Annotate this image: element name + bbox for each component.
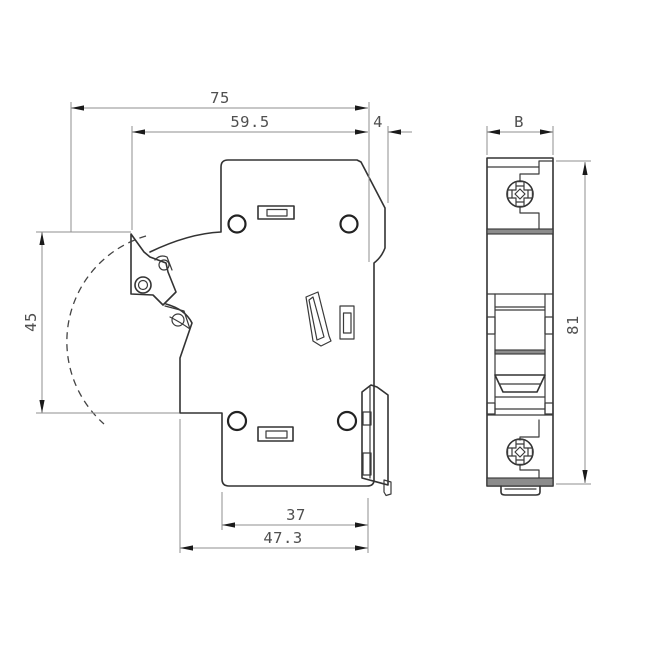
mounting-hole [229,216,246,233]
dimension-body-depth: 59.5 [132,113,368,230]
front-bottom-band [487,478,553,486]
arrowhead [388,129,401,134]
lever-pivot-hole-outer [135,277,151,293]
bottom-terminal-step [520,420,539,440]
lower-peg-roller [172,314,184,326]
top-terminal-step [520,207,539,229]
arrowhead [540,129,553,134]
dim-front-height-label: 45 [22,312,40,332]
arrowhead [39,400,44,413]
arrowhead [222,522,235,527]
vent-slot-outer [258,427,293,441]
din-clip-outline [362,385,388,485]
window-divider-band [495,350,545,354]
side-slot-outer [340,306,354,339]
lever-pivot-hole-inner [139,281,148,290]
arrowhead [487,129,500,134]
front-band [487,229,553,234]
arrowhead [355,522,368,527]
mounting-hole [341,216,358,233]
arrowhead [355,545,368,550]
dim-body-depth-label: 59.5 [230,113,269,131]
window-side-clip [545,403,553,414]
lever-outline [131,234,176,305]
bottom-terminal-step [520,465,539,478]
bottom-terminal-screw [507,439,533,465]
vent-slot-inner [267,210,287,217]
arrowhead [582,162,587,175]
dim-total-height-label: 81 [564,315,582,335]
side-view [67,160,391,496]
lever-swing-arc [67,236,146,424]
arrowhead [180,545,193,550]
dimension-total-depth: 75 [71,89,369,262]
front-view [487,158,553,495]
technical-drawing-canvas: 75 59.5 4 B [0,0,650,650]
top-terminal-screw [507,181,533,207]
arrowhead [355,129,368,134]
arrowhead [582,470,587,483]
front-din-foot [501,486,540,495]
dim-rail-hook-label: 4 [373,113,383,131]
dimension-module-width: B [487,113,553,155]
window-side-clip [545,317,553,334]
technical-drawing-page: 75 59.5 4 B [0,0,650,650]
upper-peg-tab [155,256,172,270]
arrowhead [132,129,145,134]
extension-line [71,102,369,262]
dim-module-width-label: B [514,113,524,131]
mounting-hole [338,412,356,430]
vent-slot-inner [266,431,287,438]
dim-total-depth-label: 75 [210,89,230,107]
vent-slot-outer [258,206,294,219]
window-double-line [495,307,545,310]
mounting-hole [228,412,246,430]
dim-lower-depth-inner-label: 37 [286,506,306,524]
window-side-clip [487,403,495,414]
arrowhead [39,232,44,245]
dim-lower-depth-outer-label: 47.3 [263,529,302,547]
side-slot-inner [344,313,352,333]
front-top-band [487,161,553,167]
top-terminal-step [520,167,539,181]
window-side-clip [487,317,495,334]
window-bottom-lines [487,397,553,415]
dimension-total-height: 81 [556,161,591,484]
arrowhead [71,105,84,110]
arrowhead [355,105,368,110]
dimension-rail-hook: 4 [373,113,412,203]
